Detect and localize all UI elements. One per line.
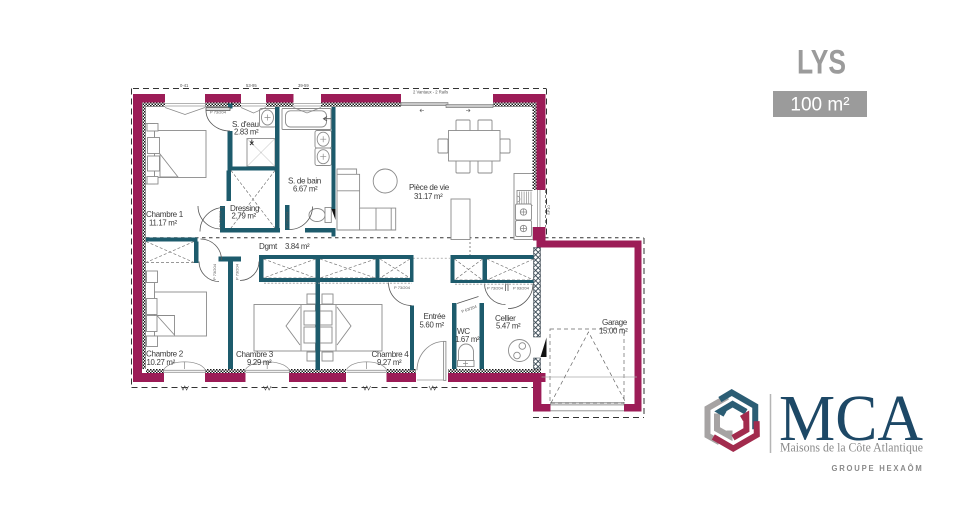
svg-text:31.17 m²: 31.17 m² <box>414 192 443 201</box>
svg-text:11.17 m²: 11.17 m² <box>149 219 177 228</box>
svg-text:2.83 m²: 2.83 m² <box>234 128 259 137</box>
svg-text:5.60 m²: 5.60 m² <box>420 321 445 330</box>
svg-text:1.67 m²: 1.67 m² <box>455 335 480 344</box>
svg-text:P 73/204: P 73/204 <box>487 286 504 291</box>
svg-text:P 73/204: P 73/204 <box>285 211 290 228</box>
svg-text:39-59: 39-59 <box>298 83 309 88</box>
svg-text:9.27 m²: 9.27 m² <box>377 358 402 367</box>
svg-text:10.27 m²: 10.27 m² <box>147 358 176 367</box>
svg-text:P 73/204: P 73/204 <box>210 110 227 115</box>
svg-text:100 m²: 100 m² <box>790 95 849 116</box>
svg-text:P 93/204: P 93/204 <box>513 286 530 291</box>
svg-text:P 73/204: P 73/204 <box>218 210 223 227</box>
svg-text:Pièce de vie: Pièce de vie <box>409 183 450 192</box>
svg-text:3.84 m²: 3.84 m² <box>285 242 310 251</box>
svg-text:P 73/204: P 73/204 <box>394 285 411 290</box>
svg-text:Dgmt: Dgmt <box>259 242 278 251</box>
svg-text:0-41: 0-41 <box>180 83 189 88</box>
svg-text:9.29 m²: 9.29 m² <box>247 358 272 367</box>
svg-text:5.47 m²: 5.47 m² <box>496 322 521 331</box>
svg-text:Maisons de la Côte Atlantique: Maisons de la Côte Atlantique <box>780 441 923 455</box>
svg-text:LYS: LYS <box>797 44 846 82</box>
svg-text:2.79 m²: 2.79 m² <box>232 212 257 221</box>
svg-text:6.67 m²: 6.67 m² <box>293 185 318 194</box>
svg-text:15.00 m²: 15.00 m² <box>599 327 628 336</box>
svg-text:SP10: SP10 <box>546 204 551 215</box>
svg-text:P 73/204: P 73/204 <box>212 263 217 280</box>
svg-text:P 73/204: P 73/204 <box>235 263 240 280</box>
svg-text:GROUPE HEXAÔM: GROUPE HEXAÔM <box>832 462 924 473</box>
svg-text:53-95: 53-95 <box>246 83 257 88</box>
svg-text:2 Vantaux - 2 Rails: 2 Vantaux - 2 Rails <box>413 90 448 95</box>
